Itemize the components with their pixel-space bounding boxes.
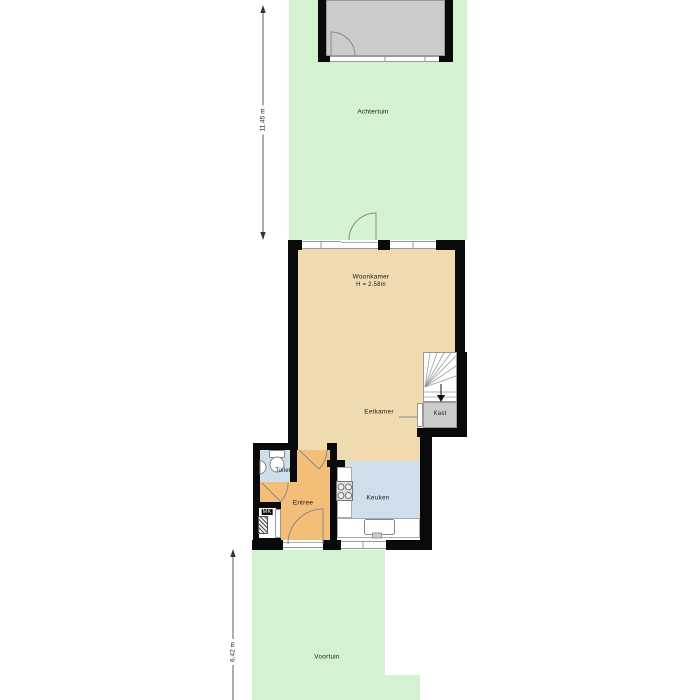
- woonkamer-label: Woonkamer: [353, 274, 390, 281]
- wall-segment: [417, 428, 467, 437]
- wall-segment: [445, 0, 453, 62]
- wall-segment: [288, 240, 298, 443]
- dimension-label-upper: 11.45 m: [259, 105, 268, 134]
- toilet-floor: [260, 450, 290, 482]
- shed-floor: [326, 0, 445, 56]
- kitchen-counter-bottom: [337, 518, 420, 538]
- wall-segment: [290, 450, 297, 482]
- window-rear-right: [390, 241, 436, 249]
- woonkamer-height-label: H = 2.58m: [356, 282, 386, 288]
- shed-front-panel: [330, 56, 439, 62]
- window-rear-left: [302, 241, 341, 249]
- achtertuin-label: Achtertuin: [357, 109, 388, 116]
- eetkamer-label: Eetkamer: [364, 409, 393, 416]
- keuken-label: Keuken: [366, 495, 389, 502]
- stairs-box: [423, 352, 457, 402]
- kast-label: Kast: [434, 411, 447, 417]
- front-door-threshold: [283, 542, 323, 548]
- wall-segment: [253, 443, 298, 450]
- kast-door: [417, 403, 423, 427]
- wall-segment: [378, 240, 390, 250]
- wall-segment: [327, 460, 345, 467]
- mk-label: MK: [262, 509, 273, 515]
- mk-door: [275, 509, 281, 538]
- voortuin-area: [252, 550, 385, 700]
- voortuin-extension: [385, 675, 420, 700]
- meter-hatch-icon: [258, 516, 268, 534]
- wall-segment: [457, 352, 467, 437]
- wall-segment: [318, 0, 326, 62]
- wall-segment: [323, 540, 341, 550]
- wall-segment: [420, 437, 432, 550]
- entree-label: Entree: [293, 500, 313, 507]
- wall-segment: [439, 56, 453, 62]
- kitchen-counter-left: [337, 467, 352, 518]
- rear-door-threshold: [341, 242, 378, 249]
- wall-segment: [455, 240, 465, 352]
- voortuin-label: Voortuin: [314, 654, 339, 661]
- floorplan-canvas: Achtertuin Woonkamer H = 2.58m Eetkamer …: [0, 0, 700, 700]
- toilet-label: Toilet: [275, 468, 290, 474]
- wall-segment: [386, 540, 432, 550]
- window-front: [341, 541, 386, 549]
- wall-segment: [330, 443, 337, 540]
- dimension-label-lower: 6.42 m: [229, 639, 238, 665]
